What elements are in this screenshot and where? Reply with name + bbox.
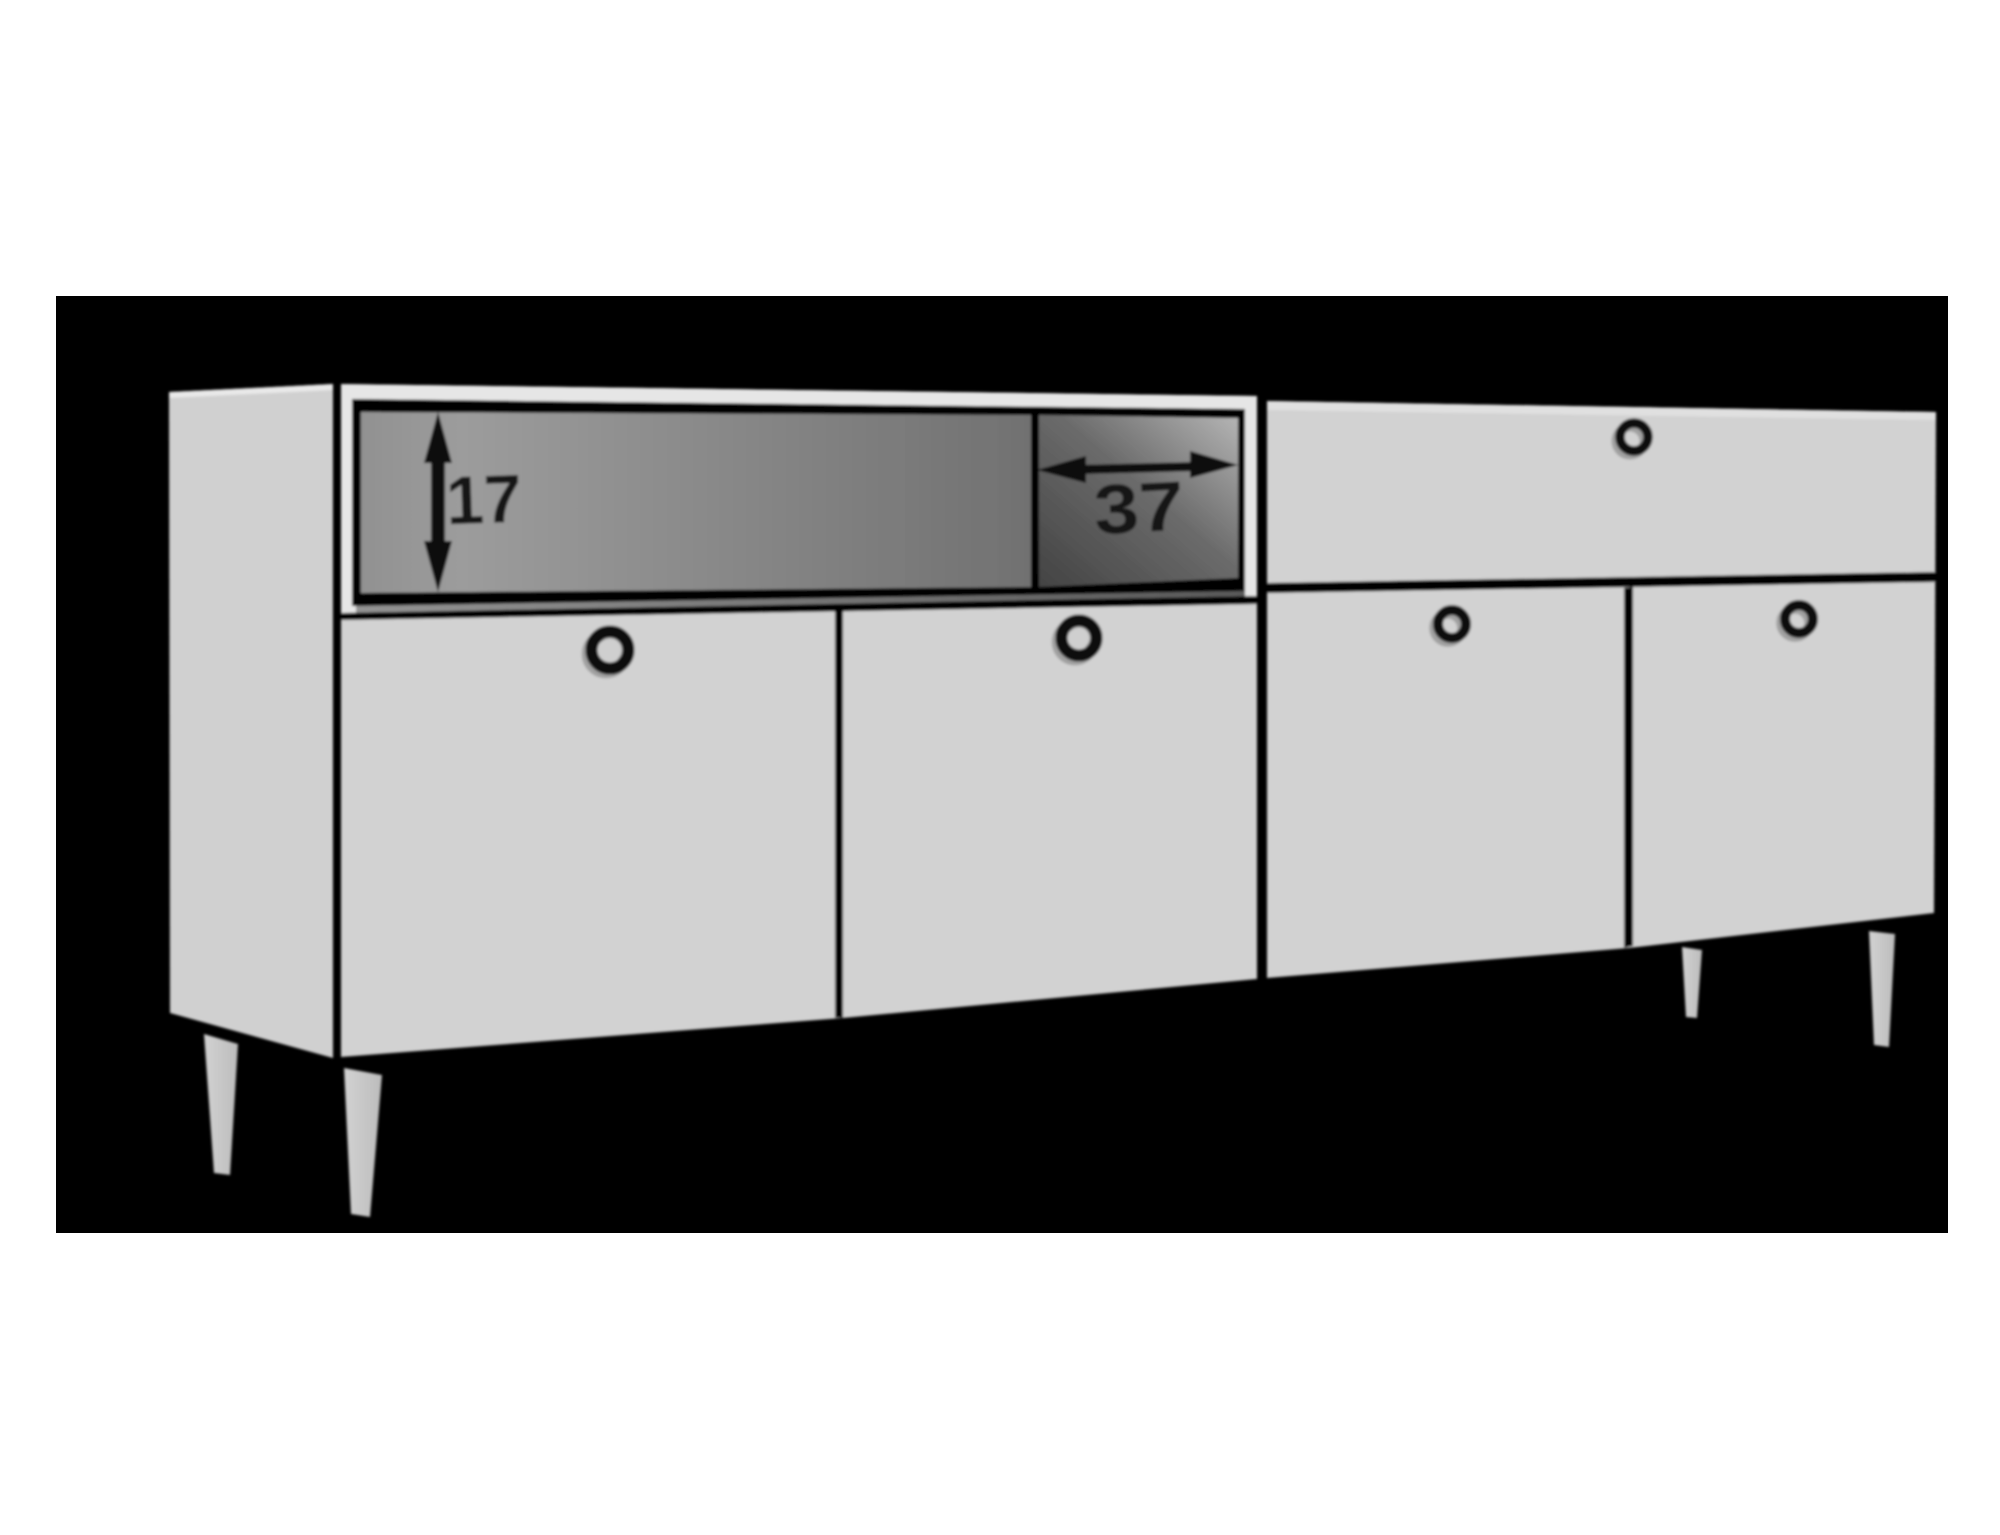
svg-text:37: 37 [1092,467,1186,550]
svg-text:17: 17 [445,461,523,540]
